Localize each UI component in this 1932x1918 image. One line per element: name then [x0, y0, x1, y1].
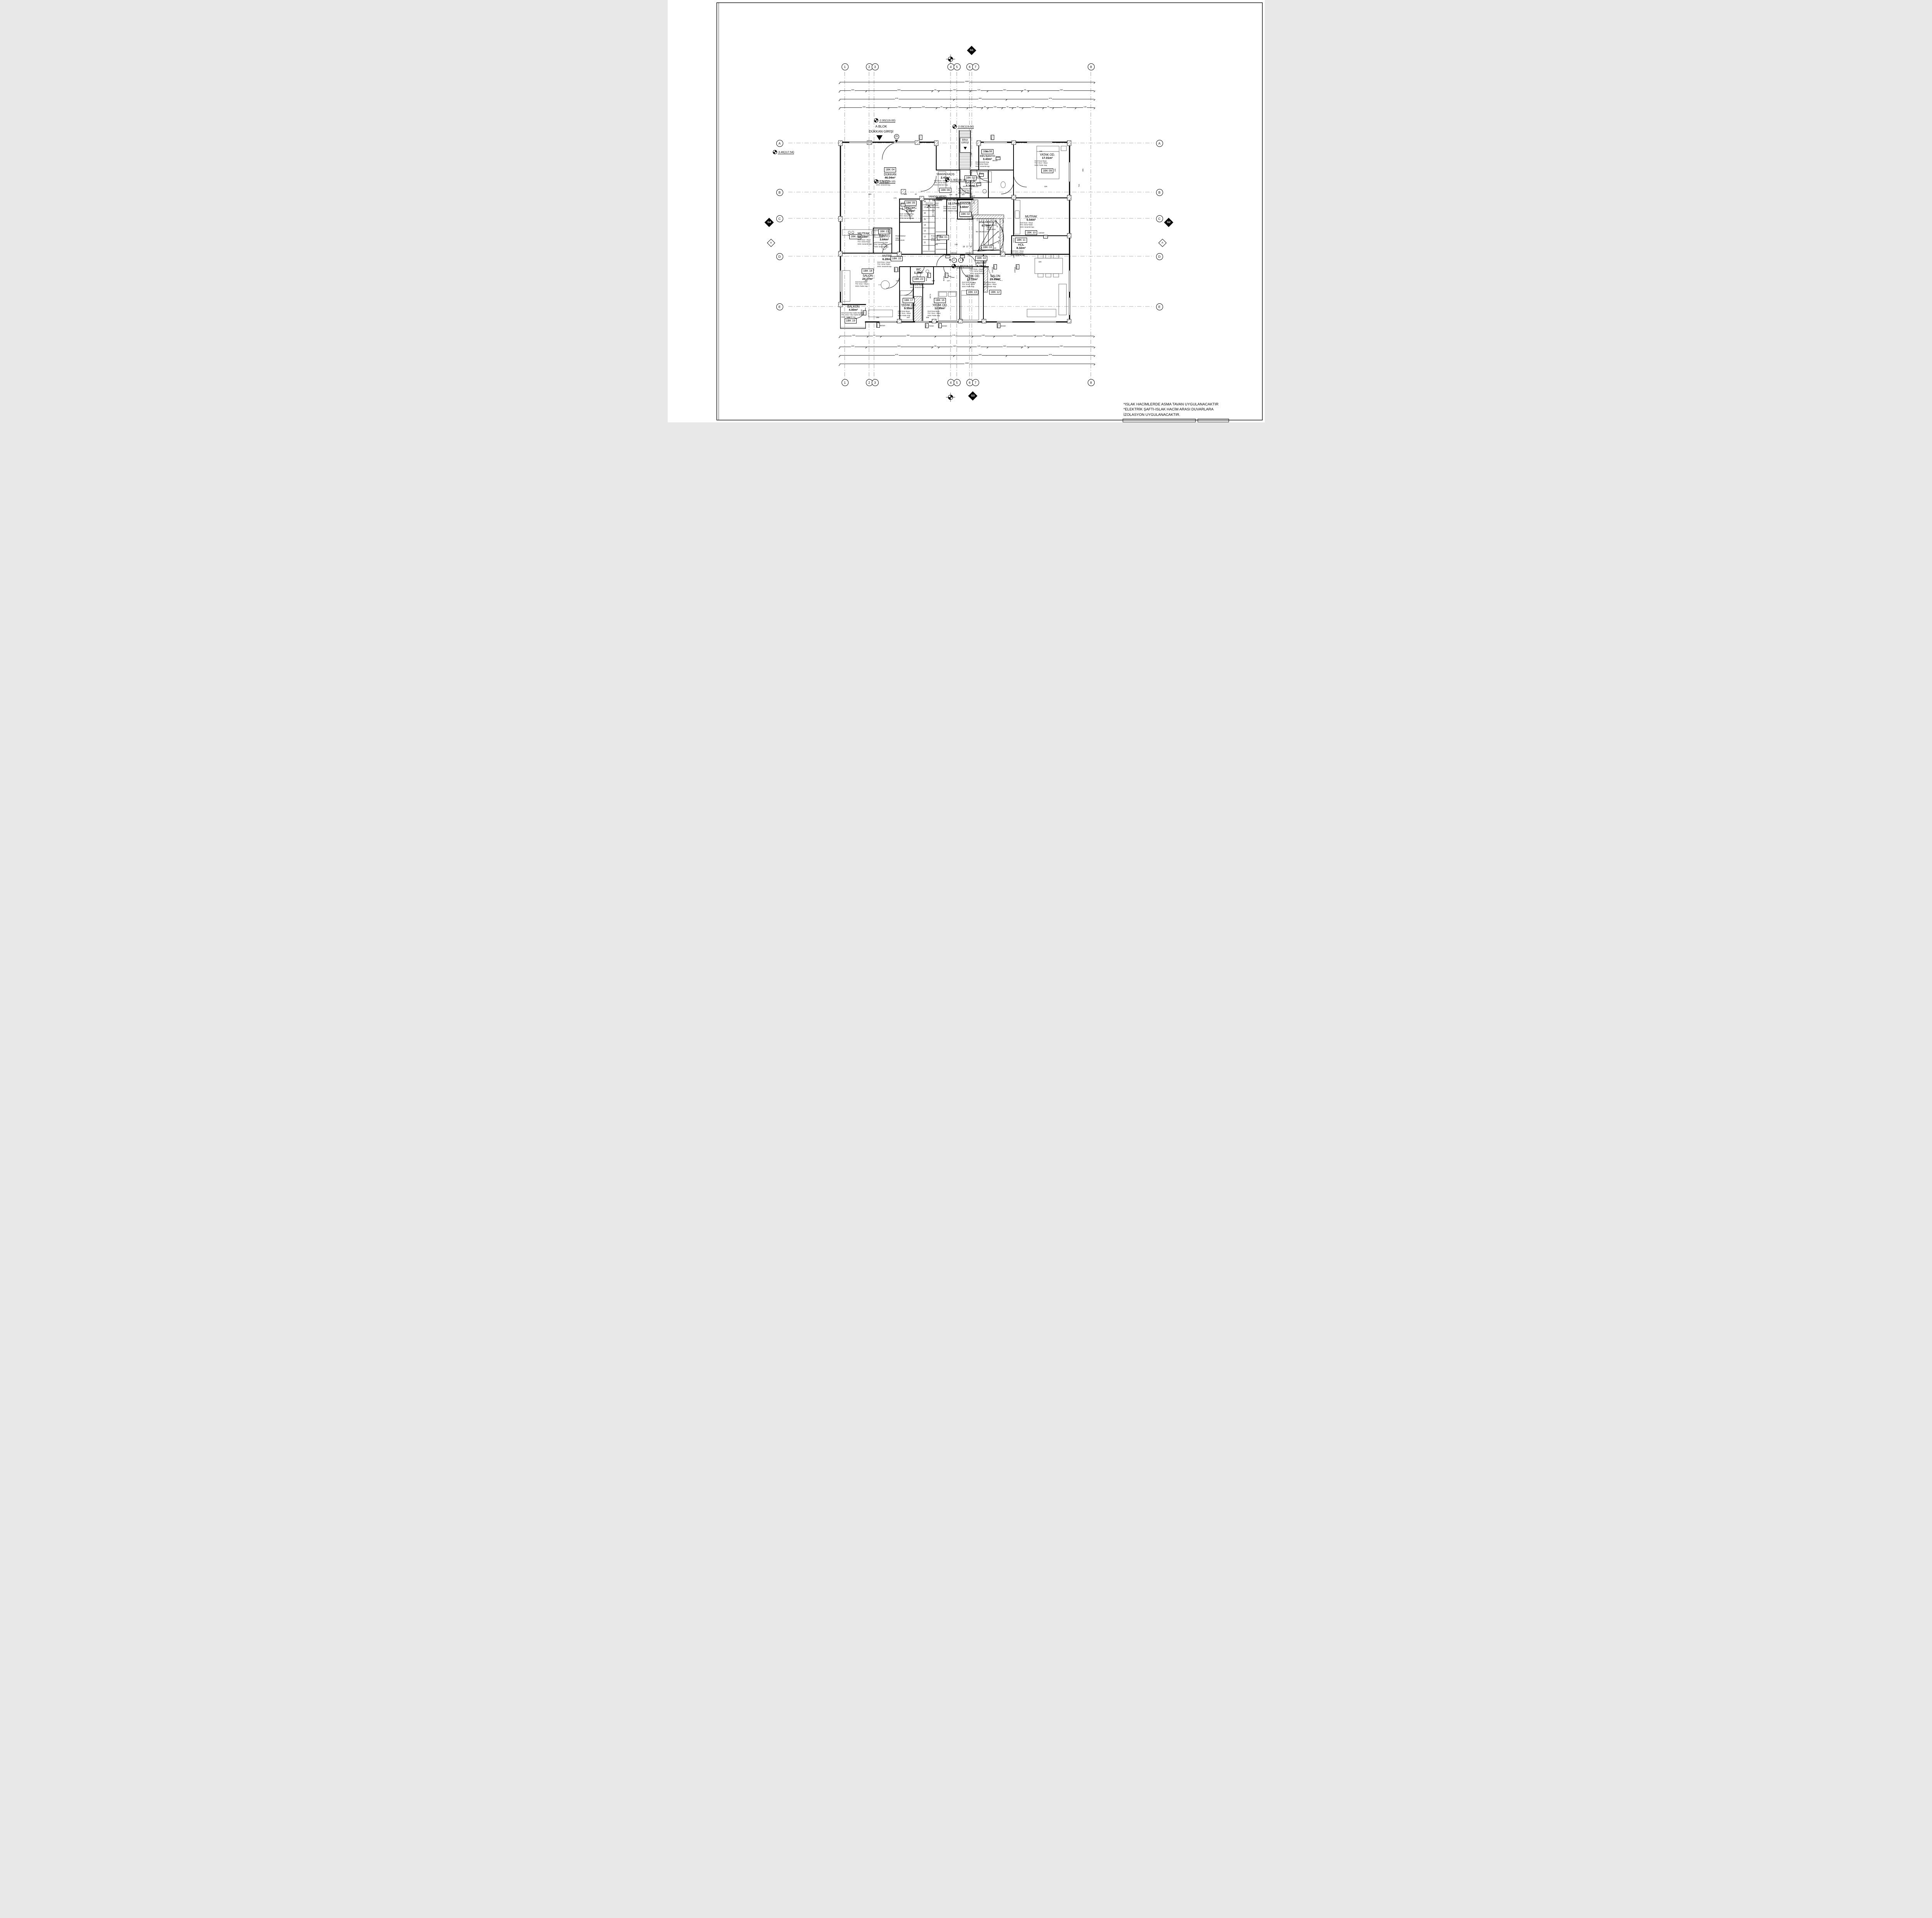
grid-col-4-top: 4: [947, 63, 954, 70]
shaft-label: ŞAFT: [1002, 226, 1004, 233]
tread-number: 16: [970, 246, 972, 248]
door-size: 100/210: [966, 252, 971, 254]
flat-number-2: 2: [952, 258, 957, 263]
room-area: 5.54m²: [1020, 218, 1043, 222]
grid-col-3-top: 3: [872, 63, 879, 70]
dim: 162.5: [973, 200, 975, 204]
door-size: 100/210: [951, 252, 957, 254]
railing-note: PASLANMAZÇELİKKORKULUK: [931, 235, 941, 242]
room-label-1bk22: WC 1.20m² 1BK 22 DUV:Seramik Kap.TAV: As…: [910, 268, 927, 288]
room-label-1bk13: YATAK OD. 13.12m² DUV:Sıva+BoyaTAV: Sıva…: [962, 274, 983, 295]
door-tag-k03: K03: [945, 273, 948, 278]
finish-floor: DOS: Seramik Kap.: [878, 265, 897, 268]
level-icon: [874, 179, 878, 184]
shaft-label: ŞAFT: [888, 227, 890, 233]
level-icon: [773, 150, 777, 154]
grid-row-a-right: A: [1156, 140, 1163, 147]
door-tag-k04: K04: [993, 264, 997, 269]
dim: 130: [949, 194, 952, 196]
dim: 195: [901, 207, 903, 210]
door-tag-k04: K04: [1016, 264, 1019, 269]
unit-tag: 1BK 04: [884, 167, 896, 172]
unit-tag-1bk03: 1BK 03: [981, 245, 994, 250]
door-tag-k01: K01: [960, 255, 965, 258]
dim: 172.5: [1013, 238, 1015, 243]
fire-stair-tread-numbers: 1817161514131211: [924, 201, 926, 248]
stair-run-label-m1: M1 18x16.1/25: [932, 205, 934, 216]
level-marker-site: -3.46(117.54): [773, 150, 794, 154]
dim: 25: [956, 194, 957, 196]
shaft-label: ŞAFT: [970, 196, 975, 198]
grid-row-b-left: B: [776, 189, 783, 196]
door-size: 120/210: [1014, 267, 1016, 273]
grid-col-1-top: 1: [842, 63, 849, 70]
grid-col-5-top: 5: [954, 63, 961, 70]
flat-25-arrow-icon: [895, 140, 898, 143]
dim: 120: [929, 199, 930, 202]
tread-number: 17: [966, 246, 969, 248]
room-label-1bk14: 1BK 14 ANTRE 5.78m² DUV:Sıva + BoyaTAV: …: [970, 254, 993, 274]
door-size: 90/210: [976, 177, 981, 179]
dim: 465: [1082, 168, 1084, 172]
room-label-1bk16: 1BK 16 YATAK OD. 12.95m² DUV:Sıva+BoyaTA…: [928, 296, 952, 317]
finish-floor: DOS: Parke Kap.: [962, 286, 983, 288]
finish-floor: DOS: Seramik Kap.: [842, 316, 866, 318]
window-size: 190/220: [1000, 325, 1006, 327]
finish-floor: DOS: Mermer Kap.: [944, 210, 964, 212]
level-marker-hall: -1.90(119.10): [952, 264, 973, 268]
tread-number: 10: [994, 247, 997, 250]
door-tag-k02: K02: [927, 273, 931, 278]
tread-number: 6: [997, 226, 998, 228]
grid-row-d-left: D: [776, 253, 783, 260]
dim: 325: [963, 186, 966, 187]
flat-number-25: 25: [894, 134, 899, 139]
room-label-1bk12: SALON 29.65m² DUV:Sıva+BoyaTAV: Sıva + B…: [984, 274, 1007, 295]
grid-col-8-top: 8: [1088, 63, 1095, 70]
dim: 210: [997, 278, 1000, 280]
level-icon: [952, 124, 957, 129]
finish-floor: DOS: Seramik Kap.: [1020, 226, 1043, 228]
window-size: 170/220: [928, 325, 934, 327]
dim-row-top-4: 3401501807014510040100707014070155130: [840, 105, 1095, 108]
unit-tag: 1BK 06: [939, 188, 952, 193]
grid-col-4-bottom: 4: [947, 379, 954, 386]
tread-number: 5: [995, 221, 997, 223]
finish-floor: DOS: Seramik Kap.: [874, 246, 895, 248]
door-size: 90/210: [926, 276, 928, 281]
grid-row-b-right: B: [1156, 189, 1163, 196]
unit-tag: 1BK 17: [903, 298, 915, 303]
tread-number: 3: [986, 220, 987, 222]
unit-tag: 1BK 11: [1015, 238, 1027, 243]
level-marker-fire-exit: -1.90(119.10): [945, 178, 967, 182]
dim-row-top-3: 875400675: [840, 96, 1095, 99]
railing-note: PASLANMAZÇELİKKORKULUK: [896, 235, 906, 242]
unit-tag: 1BK 12: [989, 290, 1002, 295]
room-label-1bk21: 1BK 21 BANYO 3.64m² DUV:Seramik Kap.TAV:…: [874, 227, 895, 248]
stair-run-label-m2: M2 18x16.11/27: [976, 231, 989, 233]
grid-row-d-right: D: [1156, 253, 1163, 260]
window-size: 140/150: [1039, 232, 1044, 234]
dim: 180: [958, 203, 960, 206]
dim: 305: [926, 317, 929, 318]
window-size: 190/220: [941, 325, 947, 327]
dim: 130: [955, 243, 958, 245]
unit-tag: 1BK 13: [966, 290, 979, 295]
floor-plan-sheet: 1 2 3 4 5 6 7 8 1 2 3 4 5 6 7 8 A B C D …: [668, 0, 1265, 422]
door-tag-k01: K01: [946, 255, 951, 258]
room-label-1bk09: YATAK OD. 17.01m² DUV:Sıva+BoyaTAV: Sıva…: [1035, 153, 1060, 174]
dim-row-bottom-total: 1950: [840, 361, 1095, 364]
window-tag-p12: P12: [919, 135, 922, 140]
dim: 200: [962, 194, 965, 196]
flat-2-arrow-icon: ◀: [949, 259, 951, 261]
dim: 187.5: [973, 178, 975, 183]
dim: 120: [904, 193, 907, 195]
dim: 445: [1039, 150, 1043, 152]
unit-tag: 1BK 18: [862, 269, 874, 274]
grid-row-e-right: E: [1156, 303, 1163, 310]
door-tag-k02: K02: [894, 267, 898, 272]
room-area: 24.27m²: [855, 277, 880, 281]
room-area: 5.78m²: [970, 265, 993, 268]
window-tag-p12: P12: [991, 135, 994, 140]
finish-floor: DOS: Seramik Kap.: [970, 272, 993, 275]
room-label-1bk17: 1BK 17 YATAK OD. 9.55m² DUV:Sıva+BoyaTAV…: [898, 296, 920, 317]
door-size: 80/210: [993, 160, 998, 162]
room-label-1bk06: YANGIN KAÇIŞ 2.43m² DUV:Sıva + BoyaTAV: …: [934, 173, 957, 193]
finish-floor: DOS: Parke Kap.: [855, 285, 880, 288]
tread-number: 2: [981, 220, 983, 222]
unit-tag: 1BK 10: [1025, 230, 1037, 235]
room-area: 29.65m²: [984, 278, 1007, 281]
grid-row-e-left: E: [776, 303, 783, 310]
room-area: 13.12m²: [962, 278, 983, 281]
unit-tag-1bk15: 1BK 15: [891, 256, 903, 261]
tread-number: 9: [998, 242, 999, 244]
unit-tag: 1BK 16: [934, 298, 946, 303]
dim: 110: [987, 181, 990, 183]
grid-col-7-bottom: 7: [972, 379, 979, 386]
level-marker-building-entry: -2.00(119.00): [952, 124, 974, 129]
dim: 200: [847, 317, 850, 318]
unit-tag: 1BK 14: [975, 256, 988, 261]
note-line-3: İZOLASYON UYGULANACAKTIR.: [1124, 412, 1219, 417]
window-tag-p13: P13: [1043, 235, 1048, 238]
door-tag-k02: K02: [901, 203, 906, 206]
dim: 485: [865, 280, 868, 282]
grid-row-c-left: C: [776, 215, 783, 222]
unit-tag: 1BK 09: [1041, 168, 1054, 174]
finish-floor: DOS: Seramik Kap.: [910, 286, 927, 289]
tread-number: 7: [998, 231, 999, 233]
dim: 70: [967, 280, 969, 282]
unit-tag: 1BK 05: [905, 201, 917, 206]
dim-row-bottom-1: 1306025017010019080190: [840, 333, 1095, 336]
building-entrance-label: BİNA GİRİŞİ: [960, 138, 971, 153]
finish-floor: DOS: Seramik Kap.: [976, 165, 1000, 168]
door-size: 90/210: [898, 267, 900, 272]
finish-floor: DOS: Parke Kap.: [928, 315, 952, 317]
dim-row-top-total: 1950: [840, 79, 1095, 82]
grid-col-7-top: 7: [972, 63, 979, 70]
grid-col-3-bottom: 3: [872, 379, 879, 386]
flat-1-arrow-icon: ▶: [963, 259, 964, 261]
dim: 168: [932, 280, 935, 282]
dim: 285: [876, 317, 879, 318]
level-icon: [945, 178, 949, 182]
room-area: 3.64m²: [874, 238, 895, 242]
window-size: 120/220: [861, 310, 863, 315]
tread-number: 8: [998, 237, 1000, 239]
unit-tag: 1BK 22: [913, 277, 925, 282]
general-notes: *ISLAK HACİMLERDE ASMA TAVAN UYGULANACAK…: [1124, 402, 1219, 417]
door-size: 80/210: [943, 276, 945, 281]
grid-lines: [788, 72, 1154, 379]
sheet-frame: [717, 3, 1262, 422]
dim: 190: [986, 151, 989, 153]
level-icon: [952, 264, 956, 268]
grid-col-5-bottom: 5: [954, 379, 961, 386]
room-area: 9.55m²: [898, 307, 920, 310]
grid-row-c-right: C: [1156, 215, 1163, 222]
dim: 130: [896, 280, 899, 282]
dim: 235: [973, 282, 976, 284]
dim-row-top-2: 2005005024013026050500: [840, 88, 1095, 91]
dim: 137: [947, 280, 950, 282]
dim: 240: [907, 317, 910, 318]
tread-number: 1: [977, 220, 978, 222]
plan-linework: [668, 0, 1265, 422]
room-label-1bk18: 1BK 18 SALON 24.27m² DUV:Sıva+BoyaTAV: S…: [855, 267, 880, 287]
finish-floor: DOS: Parke Kap.: [984, 286, 1007, 288]
grid-row-a-left: A: [776, 140, 783, 147]
tread-number: 4: [991, 220, 992, 222]
level-marker-shop: -1.90(119.10): [874, 179, 896, 184]
dim: 457.5: [929, 294, 931, 299]
dim: 325: [1039, 261, 1042, 263]
finish-floor: DOS: Seramik Kap.: [876, 184, 904, 186]
railing-note: PASLANMAZÇELİKKORKULUK: [987, 224, 997, 231]
window-tag-p04: P04: [863, 310, 866, 315]
window-size: 250/220: [879, 325, 885, 327]
door-size: 120/210: [992, 267, 994, 273]
dim: 170: [894, 197, 897, 199]
note-line-1: *ISLAK HACİMLERDE ASMA TAVAN UYGULANACAK…: [1124, 402, 1219, 407]
finish-floor: DOS: Seramik Kap.: [900, 217, 922, 220]
room-area: 12.95m²: [928, 307, 952, 310]
room-area: 8.32m²: [1011, 247, 1032, 250]
entrance-arrow-icon: [964, 147, 967, 150]
room-area: 17.01m²: [1035, 157, 1060, 160]
shop-entrance-label: DÜKKAN GİRİŞİ: [864, 129, 899, 133]
dim: 260: [935, 243, 938, 245]
unit-tag-1bk02: 1BK 02: [959, 212, 972, 217]
dim: 435: [1054, 168, 1056, 172]
dim-row-bottom-2: 2005005024013026050500: [840, 344, 1095, 347]
unit-tag-1bk19: 1BK 19: [845, 318, 857, 323]
dim: 685: [869, 193, 872, 195]
note-line-2: *ELEKTRİK ŞAFTI-ISLAK HACİM ARASI DUVARL…: [1124, 407, 1219, 412]
tread-number: 18: [963, 246, 965, 248]
dim-row-bottom-3: 875400675: [840, 352, 1095, 356]
dim: 200: [970, 152, 972, 155]
grid-col-8-bottom: 8: [1088, 379, 1095, 386]
entrance-arrow-icon: [876, 135, 883, 140]
level-marker-shop-entry: -2.00(119.00): [874, 118, 896, 123]
dim: 130: [1013, 255, 1015, 258]
finish-floor: DOS: Parke Kap.: [1035, 164, 1060, 167]
level-icon: [874, 118, 878, 123]
grid-col-1-bottom: 1: [842, 379, 849, 386]
room-area: 1.20m²: [910, 271, 927, 275]
dim: 20: [915, 193, 917, 195]
finish-floor: DOS: Mermer Kap.: [934, 184, 957, 186]
dim: 715: [1078, 184, 1080, 187]
block-entrance-label: A BLOK: [868, 124, 895, 128]
dim: 325: [1044, 186, 1048, 187]
dim: 445: [984, 261, 987, 263]
door-size: 80/210: [973, 186, 978, 188]
room-label-asansor: ASANSÖR 3.60m²: [954, 203, 975, 209]
room-area: 3.60m²: [954, 206, 975, 209]
dim: 160: [1002, 220, 1004, 223]
